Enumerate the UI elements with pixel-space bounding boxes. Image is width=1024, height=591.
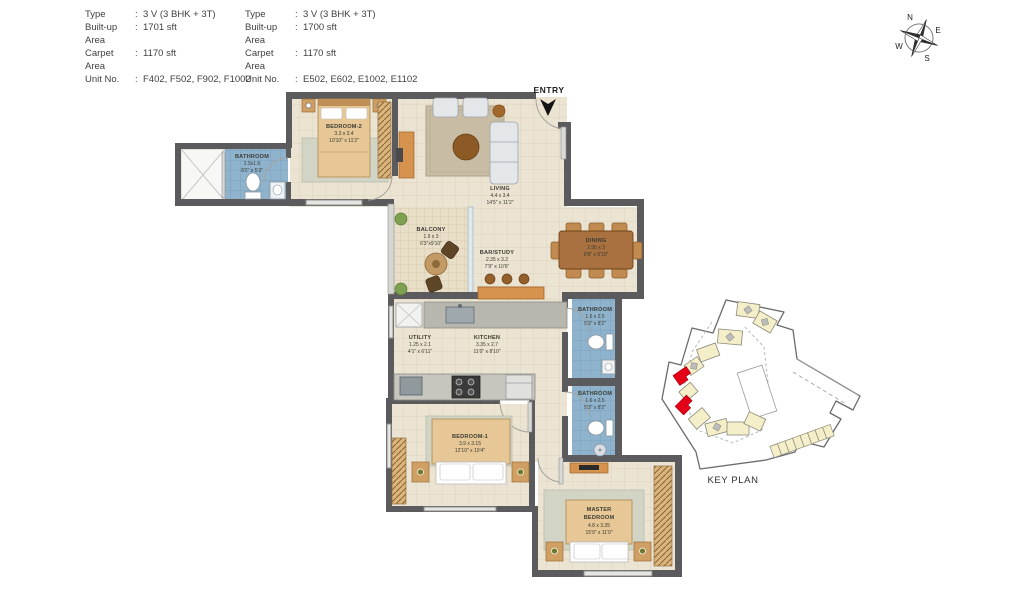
room-label-utility: UTILITY <box>409 335 432 341</box>
svg-text:3.3 x 3.4: 3.3 x 3.4 <box>334 131 353 137</box>
wardrobe-icon <box>392 438 406 504</box>
svg-text:1.6 x 2.5: 1.6 x 2.5 <box>585 398 604 404</box>
svg-text:1.25 x 2.1: 1.25 x 2.1 <box>409 342 431 348</box>
spec-row-carpet: Carpet Area : 1170 sft <box>245 47 417 73</box>
svg-text:1.9 x 3: 1.9 x 3 <box>423 234 438 240</box>
spec-value: 1170 sft <box>303 47 336 73</box>
room-label-bar-study: BAR/STUDY <box>480 250 515 256</box>
key-plan: KEY PLAN <box>662 300 860 486</box>
room-label-living: LIVING <box>490 186 510 192</box>
room-label-kitchen: KITCHEN <box>474 335 500 341</box>
fridge-icon <box>506 375 532 399</box>
compass-e: E <box>935 26 940 35</box>
stove-icon <box>452 376 480 398</box>
spec-label: Carpet Area <box>245 47 295 73</box>
spec-label: Type <box>85 8 135 21</box>
svg-text:BEDROOM: BEDROOM <box>584 515 615 521</box>
spec-table-2: Type : 3 V (3 BHK + 3T) Built-up Area : … <box>245 8 417 86</box>
spec-value: 1170 sft <box>143 47 176 73</box>
svg-text:5'3" x 8'2": 5'3" x 8'2" <box>584 405 606 411</box>
svg-text:4.4 x 3.4: 4.4 x 3.4 <box>490 193 509 199</box>
compass-s: S <box>924 54 929 63</box>
toilet-icon <box>588 421 604 435</box>
spec-row-builtup: Built-up Area : 1701 sft <box>85 21 251 47</box>
spec-row-type: Type : 3 V (3 BHK + 3T) <box>85 8 251 21</box>
spec-row-carpet: Carpet Area : 1170 sft <box>85 47 251 73</box>
spec-label: Type <box>245 8 295 21</box>
spec-row-unit: Unit No. : F402, F502, F902, F1002 <box>85 73 251 86</box>
spec-label: Carpet Area <box>85 47 135 73</box>
spec-row-type: Type : 3 V (3 BHK + 3T) <box>245 8 417 21</box>
svg-text:9'8" x 9'10": 9'8" x 9'10" <box>584 252 609 258</box>
plant-icon <box>395 213 407 225</box>
compass-n: N <box>907 13 913 22</box>
compass-w: W <box>895 42 903 51</box>
svg-text:14'5" x 11'2": 14'5" x 11'2" <box>486 200 513 206</box>
svg-text:15'9" x 11'0": 15'9" x 11'0" <box>585 530 612 536</box>
compass-rose: N E W S <box>893 12 945 64</box>
spec-label: Unit No. <box>245 73 295 86</box>
wardrobe-icon <box>654 466 672 566</box>
spec-value: E502, E602, E1002, E1102 <box>303 73 417 86</box>
spec-label: Built-up Area <box>85 21 135 47</box>
svg-text:3.9 x 3.15: 3.9 x 3.15 <box>459 441 481 447</box>
plant-icon <box>395 283 407 295</box>
spec-row-unit: Unit No. : E502, E602, E1002, E1102 <box>245 73 417 86</box>
svg-text:2.95 x 3: 2.95 x 3 <box>587 245 605 251</box>
room-label-bathroom-top: BATHROOM <box>235 154 269 160</box>
svg-text:1.6 x 2.5: 1.6 x 2.5 <box>585 314 604 320</box>
spec-value: F402, F502, F902, F1002 <box>143 73 251 86</box>
toilet-icon <box>246 173 260 191</box>
spec-value: 1700 sft <box>303 21 337 47</box>
room-label-bedroom1: BEDROOM-1 <box>452 434 488 440</box>
key-plan-label: KEY PLAN <box>707 475 758 486</box>
room-label-bedroom2: BEDROOM-2 <box>326 124 362 130</box>
room-label-dining: DINING <box>586 238 607 244</box>
spec-label: Unit No. <box>85 73 135 86</box>
svg-text:5'3" x 8'2": 5'3" x 8'2" <box>584 321 606 327</box>
svg-text:4.8 x 3.35: 4.8 x 3.35 <box>588 523 610 529</box>
spec-table-1: Type : 3 V (3 BHK + 3T) Built-up Area : … <box>85 8 251 86</box>
svg-text:12'10" x 10'4": 12'10" x 10'4" <box>455 448 485 454</box>
svg-text:3.35 x 2.7: 3.35 x 2.7 <box>476 342 498 348</box>
toilet-icon <box>588 335 604 349</box>
entry-label: ENTRY <box>534 85 565 95</box>
room-label-bathroom-low: BATHROOM <box>578 391 612 397</box>
spec-label: Built-up Area <box>245 21 295 47</box>
svg-text:10'10" x 11'2": 10'10" x 11'2" <box>329 138 359 144</box>
spec-row-builtup: Built-up Area : 1700 sft <box>245 21 417 47</box>
wardrobe-icon <box>378 102 391 178</box>
svg-text:6'3"x9'10": 6'3"x9'10" <box>420 241 442 247</box>
room-label-bathroom-mid: BATHROOM <box>578 307 612 313</box>
spec-value: 3 V (3 BHK + 3T) <box>143 8 216 21</box>
floorplan-page: BATHROOM 2.5x1.6 8'2" x 5'3" BEDROOM-2 3… <box>0 0 1024 591</box>
svg-text:8'2" x 5'3": 8'2" x 5'3" <box>241 168 263 174</box>
floorplan-canvas: BATHROOM 2.5x1.6 8'2" x 5'3" BEDROOM-2 3… <box>0 0 1024 591</box>
spec-value: 1701 sft <box>143 21 177 47</box>
spec-value: 3 V (3 BHK + 3T) <box>303 8 376 21</box>
svg-text:2.35 x 3.2: 2.35 x 3.2 <box>486 257 508 263</box>
svg-text:7'9" x 10'6": 7'9" x 10'6" <box>485 264 510 270</box>
svg-text:2.5x1.6: 2.5x1.6 <box>244 161 261 167</box>
room-label-balcony: BALCONY <box>416 227 445 233</box>
svg-text:11'0" x 8'10": 11'0" x 8'10" <box>473 349 500 355</box>
svg-text:4'1" x 6'11": 4'1" x 6'11" <box>408 349 432 355</box>
room-label-master: MASTER <box>587 507 612 513</box>
